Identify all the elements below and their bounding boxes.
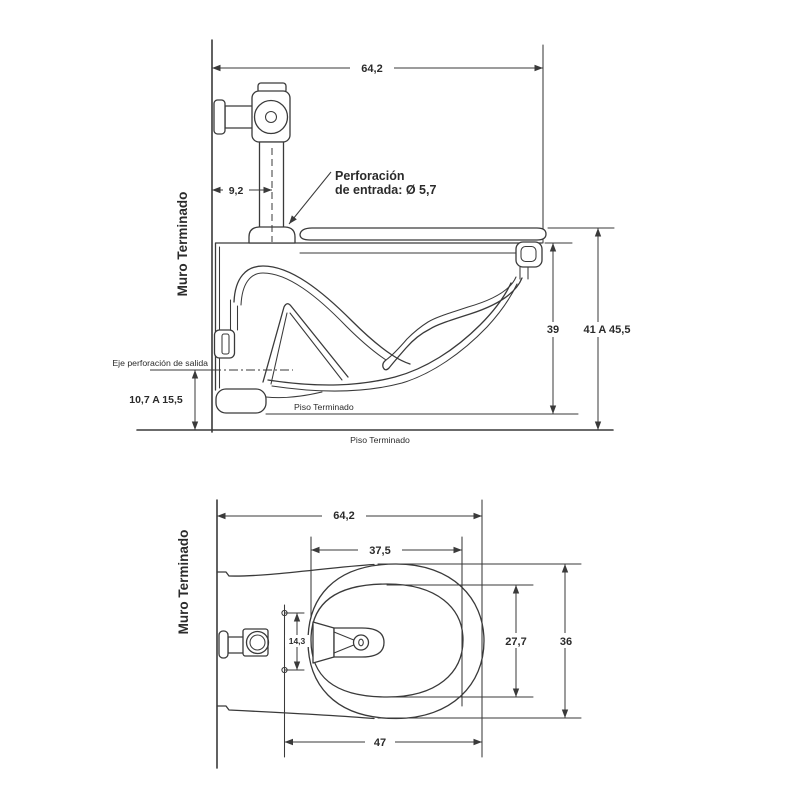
trapway-weir-inner <box>271 313 342 384</box>
outlet-spud-slot <box>222 334 229 354</box>
plan-body-top-line <box>217 565 374 577</box>
dim-bowl-inner-width: 27,7 <box>387 585 533 697</box>
front-channel-inner <box>386 277 516 360</box>
dim-bowl-inner-width-label: 27,7 <box>505 636 526 648</box>
dim-bolt-spacing: 14,3 <box>285 613 310 670</box>
technical-drawing-toilet: 64,2 9,2 Perforación de entrada: Ø 5,7 3… <box>0 0 800 800</box>
side-floor-label: Piso Terminado <box>350 435 410 445</box>
outlet-axis: Eje perforación de salida 10,7 A 15,5 <box>112 358 293 430</box>
dim-outlet-axis-height-label: 10,7 A 15,5 <box>129 394 183 406</box>
flush-valve-plan <box>219 629 269 658</box>
bowl-bottom-outer <box>268 283 511 385</box>
sump-trapezoid <box>313 622 334 663</box>
dim-bolt-spacing-label: 14,3 <box>289 636 306 646</box>
inlet-note: Perforación de entrada: Ø 5,7 <box>289 169 436 224</box>
dim-plan-overall-depth-label: 64,2 <box>333 510 354 522</box>
plan-body-bottom-line <box>217 706 374 719</box>
inlet-leader-arrow <box>289 172 331 224</box>
seat <box>300 228 546 240</box>
valve-wall-bracket <box>214 100 225 134</box>
rim-bolt-block-hole <box>521 247 536 262</box>
plan-wall-label: Muro Terminado <box>176 530 191 635</box>
valve-body <box>252 91 290 142</box>
dim-side-overall-depth-label: 64,2 <box>361 63 382 75</box>
plan-valve-neck <box>228 637 244 653</box>
dim-bolt-line-to-rear-label: 47 <box>374 737 386 749</box>
dim-bowl-opening-depth: 37,5 <box>311 543 462 557</box>
foot-to-bowl-line <box>266 392 322 398</box>
bowl-base-label: Piso Terminado <box>294 402 354 412</box>
outlet-axis-label: Eje perforación de salida <box>112 358 208 368</box>
plan-valve-wall-grommet <box>219 631 228 658</box>
dim-bolt-line-to-rear: 47 <box>285 735 483 749</box>
dim-bowl-height: 39 <box>539 243 572 414</box>
plan-sump-detail <box>313 622 384 663</box>
side-view: 64,2 9,2 Perforación de entrada: Ø 5,7 3… <box>112 40 634 445</box>
dim-rim-height-range-label: 41 A 45,5 <box>584 324 631 336</box>
inlet-note-line2: de entrada: Ø 5,7 <box>335 183 436 197</box>
dim-plan-overall-depth: 64,2 <box>217 508 482 522</box>
bowl-rear-arch-inner <box>241 273 386 360</box>
inlet-note-line1: Perforación <box>335 169 404 183</box>
dim-inlet-offset-label: 9,2 <box>229 185 244 197</box>
dim-overall-width-label: 36 <box>560 636 572 648</box>
mounting-foot <box>216 389 266 413</box>
dim-bowl-height-label: 39 <box>547 324 559 336</box>
valve-wall-connector <box>225 106 253 128</box>
flush-valve-side <box>214 83 295 243</box>
side-wall-label: Muro Terminado <box>175 192 190 297</box>
dim-bowl-opening-depth-label: 37,5 <box>369 545 390 557</box>
bowl-rear-arch-outer <box>234 266 410 364</box>
front-channel-outer <box>383 278 522 370</box>
sump-outlet-circle <box>354 635 369 650</box>
dim-side-overall-depth: 64,2 <box>212 61 543 75</box>
plan-view: 64,2 37,5 14,3 27,7 <box>176 500 581 768</box>
